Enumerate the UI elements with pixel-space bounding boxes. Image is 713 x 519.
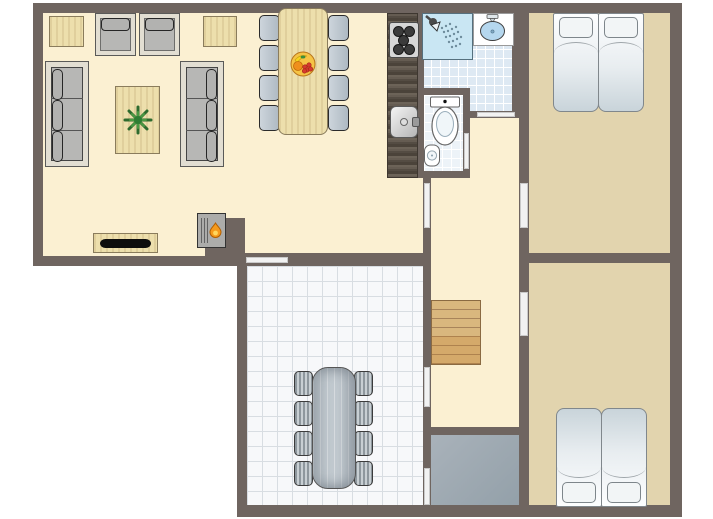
- sofa-cushion: [52, 100, 63, 131]
- wall-utility-top: [423, 427, 519, 435]
- sheet-fold: [557, 467, 601, 478]
- tv-stand: [93, 233, 158, 253]
- patio-chair: [354, 371, 373, 396]
- wall-tiledroom-left: [237, 256, 247, 517]
- door-tiledroom-top: [246, 257, 288, 263]
- utility-room-floor: [431, 435, 519, 505]
- sofa-cushion: [206, 131, 217, 162]
- patio-chair: [294, 461, 313, 486]
- patio-chair: [294, 431, 313, 456]
- patio-chair: [354, 401, 373, 426]
- side-table: [49, 16, 84, 47]
- burner-icon: [393, 44, 404, 55]
- door-bedroom-bottom: [520, 292, 528, 336]
- sofa-cushion: [206, 100, 217, 131]
- toilet-icon: [428, 96, 462, 148]
- patio-chair: [354, 461, 373, 486]
- armchair: [139, 13, 180, 56]
- sofa-right: [180, 61, 224, 167]
- stairs: [431, 300, 481, 365]
- dining-chair: [328, 15, 349, 41]
- wall-left: [33, 3, 43, 266]
- fruit-bowl-icon: [290, 51, 316, 77]
- pillow: [559, 17, 593, 38]
- floor-plan: [0, 0, 713, 519]
- fireplace: [197, 213, 226, 248]
- long-table: [312, 367, 356, 489]
- sofa-cushion: [52, 131, 63, 162]
- coffee-table: [115, 86, 160, 154]
- pillow: [604, 17, 638, 38]
- flame-icon: [209, 222, 222, 239]
- hallway-floor-upper: [470, 118, 519, 178]
- sheet-fold: [554, 42, 598, 53]
- stairs-lower-treads: [432, 336, 480, 364]
- armchair-back-cushion: [145, 18, 174, 31]
- tv-icon: [100, 239, 151, 248]
- dining-table: [278, 8, 328, 135]
- dining-chair: [259, 75, 280, 101]
- sofa-cushion: [52, 69, 63, 100]
- bed: [598, 13, 644, 112]
- drain-icon: [400, 118, 408, 126]
- door-toilet: [464, 133, 469, 169]
- burner-icon: [404, 44, 415, 55]
- dining-chair: [259, 15, 280, 41]
- bed: [556, 408, 602, 507]
- pillow: [607, 482, 641, 503]
- patio-chair: [354, 431, 373, 456]
- side-table: [203, 16, 237, 47]
- wall-top: [33, 3, 682, 13]
- kitchen-sink: [390, 106, 418, 138]
- armchair: [95, 13, 136, 56]
- faucet-icon: [412, 117, 420, 127]
- shower: [422, 13, 473, 60]
- plant-icon: [122, 104, 154, 136]
- wall-bedroom-divider: [519, 253, 682, 263]
- bed: [553, 13, 599, 112]
- fireplace-vents: [201, 218, 209, 243]
- washbasin-icon: [474, 14, 511, 43]
- patio-chair: [294, 401, 313, 426]
- corner-sink-icon: [424, 144, 441, 167]
- sofa-left: [45, 61, 89, 167]
- door-tiledroom-to-hallway: [424, 367, 430, 407]
- door-bedroom-top: [520, 183, 528, 228]
- stove: [389, 22, 419, 58]
- door-bathroom: [477, 112, 515, 117]
- sheet-fold: [602, 467, 646, 478]
- dining-chair: [328, 45, 349, 71]
- dining-chair: [259, 45, 280, 71]
- armchair-back-cushion: [101, 18, 130, 31]
- door-living-to-hallway: [424, 183, 430, 228]
- dining-chair: [328, 75, 349, 101]
- patio-chair: [294, 371, 313, 396]
- bed: [601, 408, 647, 507]
- sheet-fold: [599, 42, 643, 53]
- dining-chair: [328, 105, 349, 131]
- washbasin: [473, 13, 514, 46]
- shower-head-icon: [424, 15, 471, 58]
- dining-chair: [259, 105, 280, 131]
- pillow: [562, 482, 596, 503]
- sofa-cushion: [206, 69, 217, 100]
- door-tiledroom-to-utility: [424, 468, 430, 505]
